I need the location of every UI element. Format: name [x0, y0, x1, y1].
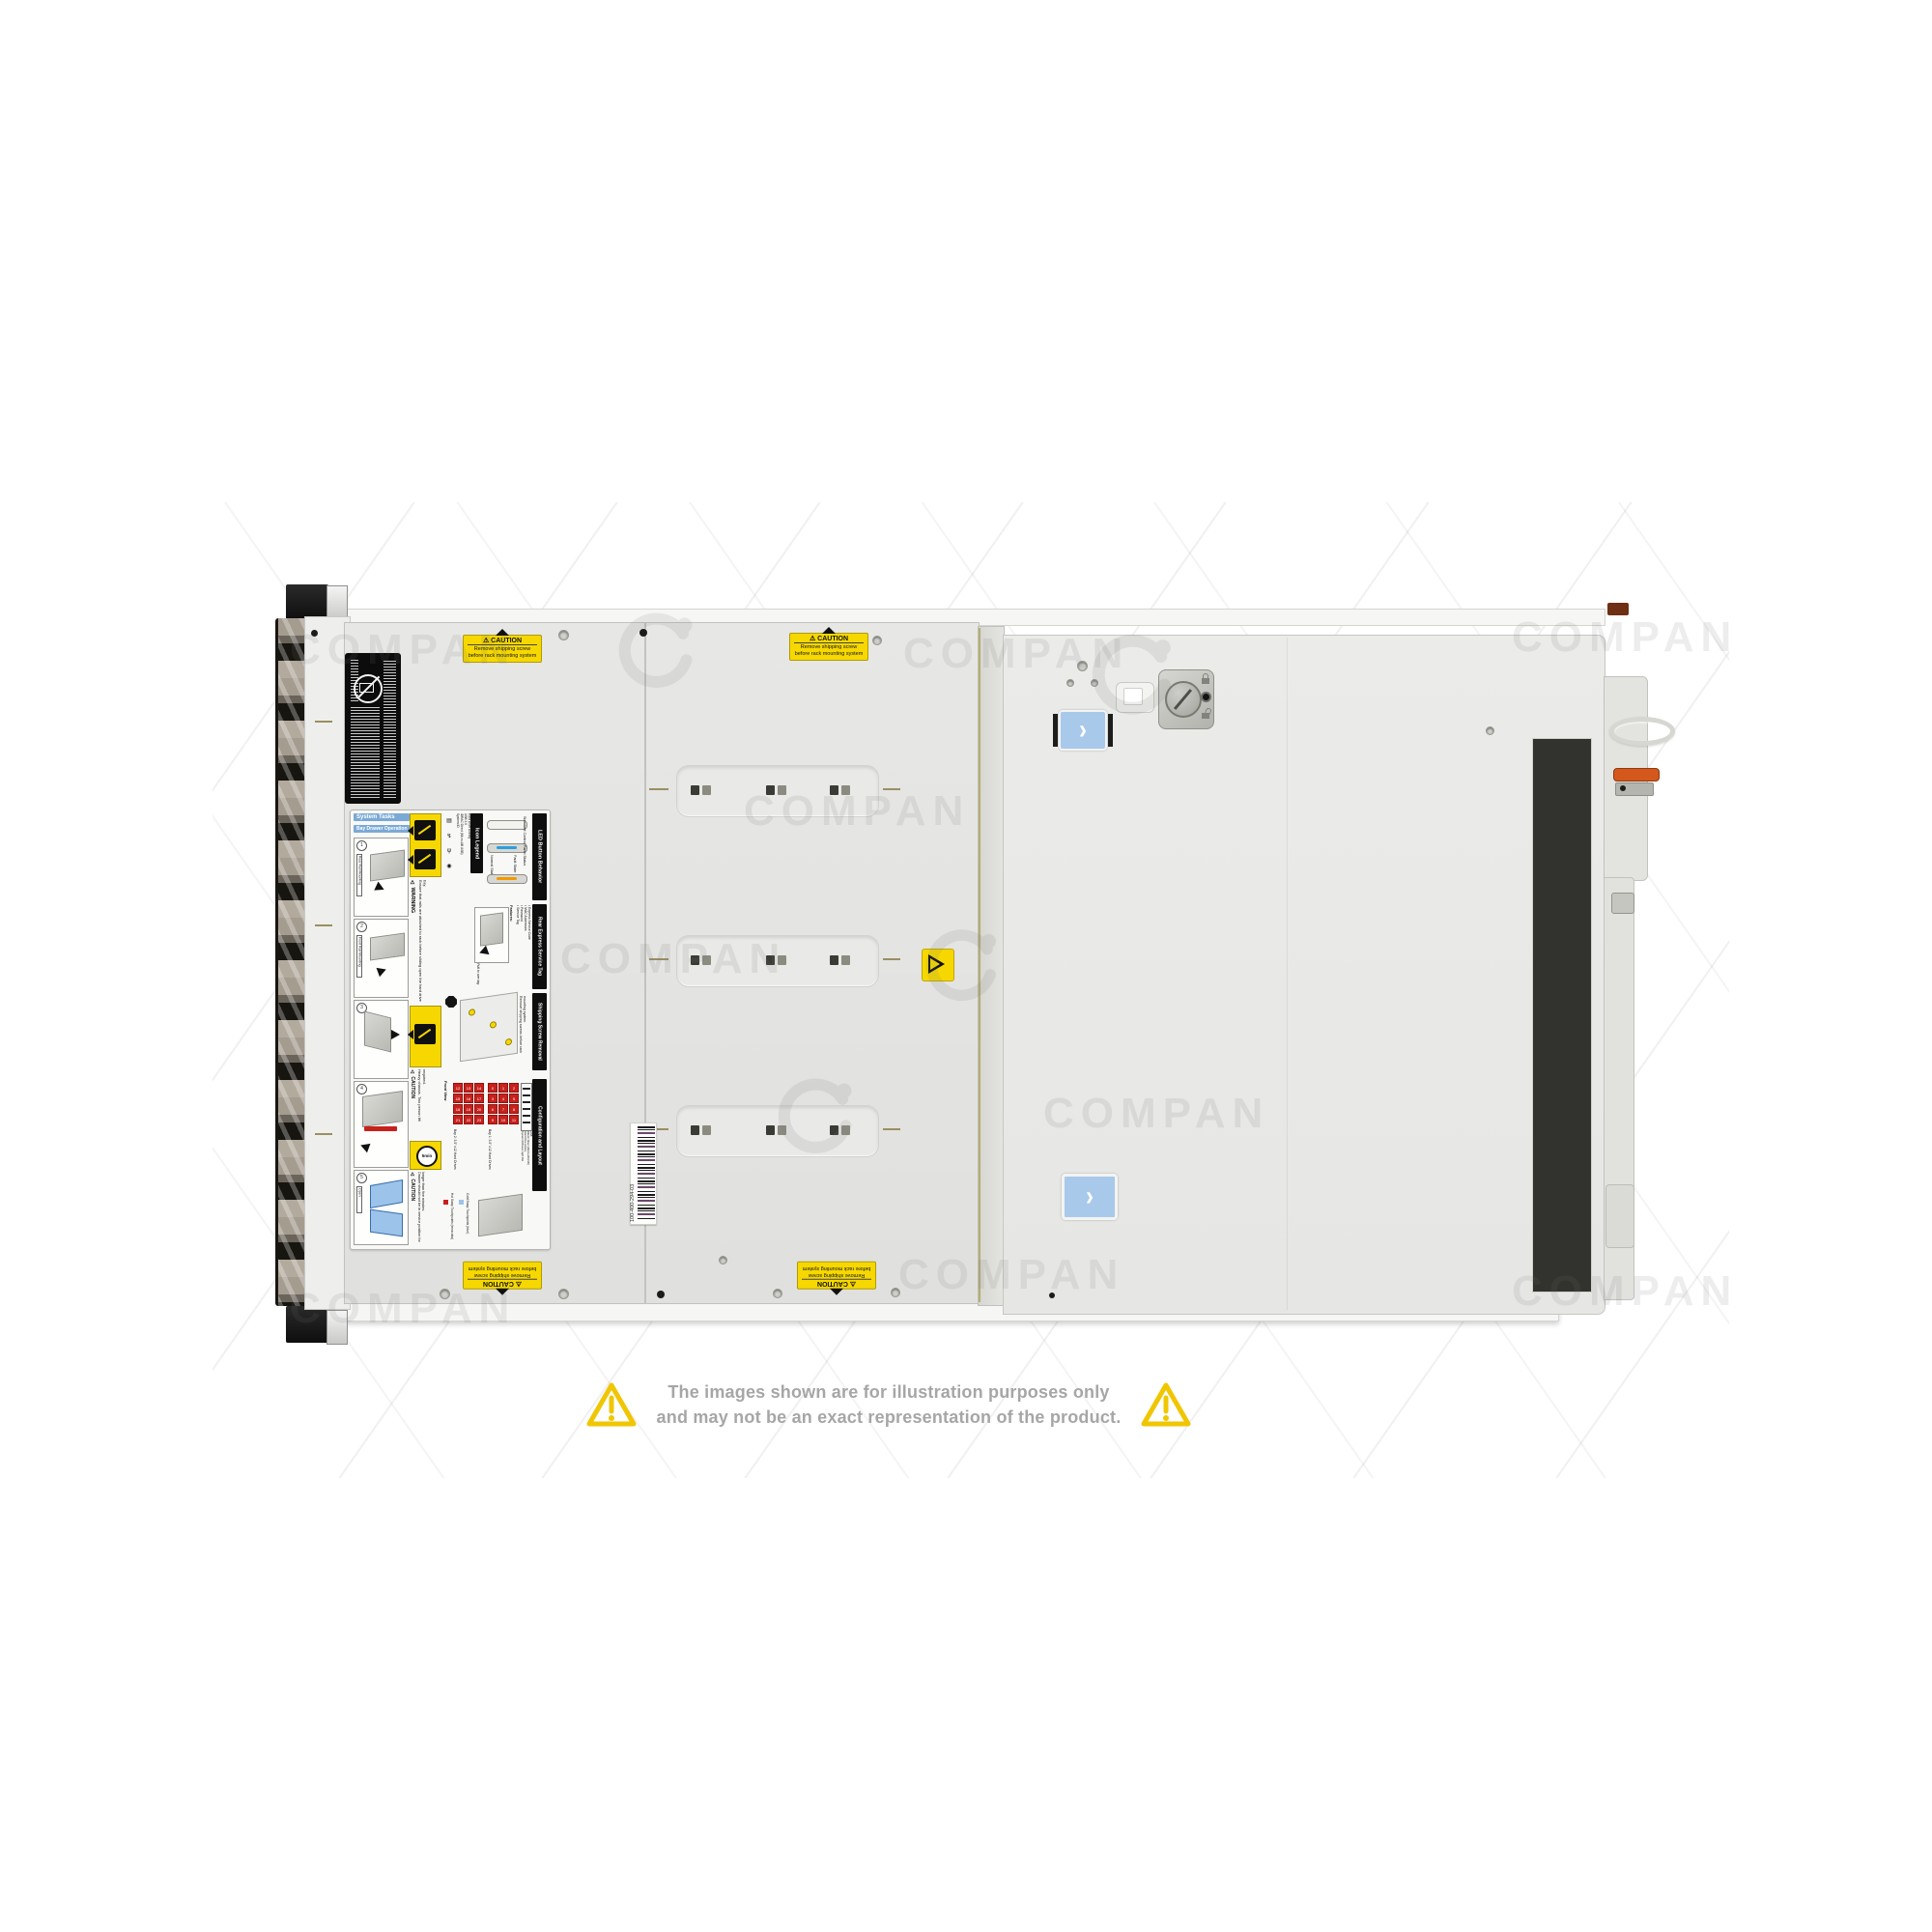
drive-bay-cell: 4	[498, 1094, 508, 1103]
caution-title: ⚠ CAUTION	[410, 1069, 415, 1137]
chevron-right-icon: ›	[1079, 717, 1087, 745]
caution-text: Heavy chassis. Two person lift required.	[417, 1069, 427, 1137]
caution-heavy-block: ⚠ CAUTION Heavy chassis. Two person lift…	[410, 1069, 440, 1137]
rail-tag: Open	[356, 1186, 362, 1213]
drive-bay-cell: 5	[509, 1094, 519, 1103]
hdd-activity-icon: ◉	[442, 863, 456, 869]
legend-hot-text: Hot Swap Touchpoints (terracotta)	[450, 1193, 454, 1243]
seam-mark	[315, 924, 332, 926]
watermark-text: COMPAN	[560, 935, 786, 983]
drive-bay-cell: 6	[488, 1104, 497, 1114]
vent-hole	[1486, 726, 1494, 735]
watermark-logo	[778, 1074, 861, 1157]
side-latch	[1611, 893, 1634, 914]
task-diagram: 2 Front Rail Mounting	[354, 919, 409, 998]
drive-bay-cell: 13	[464, 1083, 473, 1093]
drive-bay-cell: 20	[474, 1104, 484, 1114]
orange-release-latch	[1613, 768, 1660, 781]
step-number: 4	[356, 1084, 367, 1094]
watermark-text: COMPAN	[290, 626, 516, 674]
locked-padlock-icon	[1202, 678, 1209, 684]
caution-drawer-block: ⚠ CAUTION Drawer should not be in servic…	[410, 1172, 440, 1247]
screw-hole	[558, 1289, 569, 1299]
seam-mark	[883, 958, 900, 960]
step-number: 2	[356, 922, 367, 932]
drive-bay-cell: 1	[498, 1083, 508, 1093]
icon-legend-header: Icon Legend	[470, 813, 483, 873]
disclaimer-line2: and may not be an exact representation o…	[657, 1405, 1122, 1430]
bay1-label: Bay 1: 3.5" x12 Hard Drives	[488, 1129, 492, 1189]
barcode-label: 100-400-294-03	[630, 1122, 657, 1225]
cover-release-button-bottom: ›	[1062, 1174, 1118, 1220]
icon-legend-names: System IDiDRAC Direct (Micro-AB USB)USB …	[456, 813, 469, 873]
watermark-text: COMPAN	[290, 1285, 516, 1333]
warning-title: ⚠ WARNING	[410, 880, 415, 1002]
rail-tag: Rear Rail Mounting	[356, 854, 362, 896]
pinch-hazard-icon	[414, 849, 436, 869]
seam-mark	[649, 788, 668, 790]
led-bar-fault	[487, 874, 527, 884]
regulatory-fine-print	[351, 707, 380, 798]
pinch-hazard-icon	[414, 820, 436, 840]
side-tab	[1605, 1184, 1634, 1248]
label-header-system-tasks: System Tasks	[354, 813, 410, 821]
product-photo-canvas: › › ⚠ CAUTION Remove shipping screw befo…	[0, 0, 1932, 1932]
drive-bay-cell: 0	[488, 1083, 497, 1093]
control-panel-strip	[521, 1083, 532, 1131]
watermark-logo	[925, 925, 1005, 1005]
caution-line: before rack mounting system	[464, 1264, 541, 1271]
drive-bay-cell: 11	[509, 1115, 519, 1124]
legend-cold-row: Cold Swap Touchpoints (blue)	[459, 1193, 472, 1243]
led-subtitle: Standard Control Panel Status	[523, 816, 526, 897]
watermark-text: COMPAN	[1512, 1267, 1738, 1316]
drive-bay-cell: 21	[453, 1115, 463, 1124]
led-normal-label: Normal State	[490, 855, 494, 876]
caution-title: ⚠ CAUTION	[410, 1172, 415, 1247]
led-bar-normal	[487, 843, 527, 853]
stop-icon	[445, 996, 457, 1008]
vent-hole	[1066, 679, 1074, 687]
seam-mark	[883, 1128, 900, 1130]
shipping-diagram	[460, 992, 518, 1062]
unlocked-padlock-icon	[1202, 713, 1209, 719]
led-bar-off	[487, 820, 527, 830]
pinch-hazard-sticker	[410, 813, 441, 877]
caution-sticker-bottom-middle: ⚠ CAUTION Remove shipping screw before r…	[797, 1262, 876, 1290]
drive-bay-cell: 19	[464, 1104, 473, 1114]
caution-line: Remove shipping screw	[464, 1271, 541, 1278]
watermark-text: COMPAN	[898, 1251, 1124, 1299]
task-diagram: 3	[354, 1000, 409, 1079]
bay2-grid: 121314151617181920212223	[453, 1083, 484, 1124]
warning-text: Ensure that rails are attached to rack b…	[417, 880, 427, 1002]
pinch-hazard-icon	[414, 1024, 436, 1044]
five-minute-timer-sticker: 5min	[410, 1141, 441, 1170]
usb-icon: ψ	[442, 848, 456, 854]
bay2-label: Bay 2: 3.5" x12 Hard Drives	[453, 1129, 457, 1189]
disclaimer: The images shown are for illustration pu…	[580, 1379, 1198, 1430]
regulatory-fine-print	[384, 659, 396, 798]
task-diagram: 5 Open	[354, 1170, 409, 1245]
drive-bay-cell: 12	[453, 1083, 463, 1093]
drive-bay-cell: 18	[453, 1104, 463, 1114]
rack-ear-top-left-latch	[327, 585, 348, 620]
label-header-bay-drawer: Bay Drawer Operation	[354, 825, 410, 833]
drive-bay-cell: 14	[474, 1083, 484, 1093]
barcode-text: 100-400-294-03	[631, 1123, 637, 1224]
drive-bay-cell: 3	[488, 1094, 497, 1103]
front-bezel-vents	[275, 618, 307, 1306]
legend-hot-row: Hot Swap Touchpoints (terracotta)	[443, 1193, 457, 1243]
drive-bay-cell: 15	[453, 1094, 463, 1103]
latch-screw	[1620, 785, 1626, 791]
drive-bay-cell: 17	[474, 1094, 484, 1103]
rail-tag: Front Rail Mounting	[356, 935, 362, 978]
task-diagram: 4	[354, 1081, 409, 1168]
bay1-grid: 01234567891011	[488, 1083, 519, 1124]
cold-swap-color-chip	[459, 1200, 464, 1205]
step-number: 5	[356, 1173, 367, 1183]
watermark-text: COMPAN	[1043, 1090, 1269, 1138]
screw-hole	[558, 630, 569, 640]
caution-title: ⚠ CAUTION	[802, 1279, 871, 1288]
features-heading: Features:	[509, 905, 513, 990]
service-features: Features: Service TagPasswordMAC Address…	[509, 905, 530, 990]
shipping-header: Shipping Screw Removal	[532, 993, 547, 1070]
drive-bay-cell: 23	[474, 1115, 484, 1124]
features-list: Service TagPasswordMAC AddressesExpress …	[516, 905, 530, 990]
led-section-header: LED Button Behavior	[532, 813, 547, 900]
seam-mark	[315, 721, 332, 723]
caution-title: ⚠ CAUTION	[794, 635, 864, 643]
lock-indicator-dot	[1201, 692, 1211, 702]
regulatory-label	[345, 653, 401, 804]
step-number: 1	[356, 840, 367, 851]
screw	[657, 1291, 665, 1298]
task-diagram: 1 Rear Rail Mounting	[354, 838, 409, 917]
barcode-stripes	[638, 1126, 656, 1221]
exhaust-vent-grid	[1532, 738, 1592, 1293]
warning-block: ⚠ WARNING Ensure that rails are attached…	[410, 880, 440, 1002]
system-id-icon: ▤	[442, 817, 456, 824]
icon-legend-glyphs: ▤ ↯ ψ ◉	[442, 813, 456, 873]
config-chassis-diagram	[478, 1194, 523, 1236]
drive-bay-cell: 22	[464, 1115, 473, 1124]
watermark-text: COMPAN	[1512, 613, 1738, 662]
idrac-icon: ↯	[442, 833, 456, 839]
caution-text: Drawer should not be in service position…	[417, 1172, 425, 1247]
screw-hole	[773, 1289, 782, 1298]
watermark-logo	[618, 609, 701, 692]
service-note: Pull to see tag	[476, 963, 480, 992]
caution-line: before rack mounting system	[798, 1264, 875, 1271]
drive-bay-cell: 9	[488, 1115, 497, 1124]
config-header: Configuration and Layout	[532, 1079, 547, 1191]
pinch-hazard-sticker	[410, 1006, 441, 1067]
screw-hole	[719, 1256, 727, 1264]
screw-hole	[872, 636, 882, 645]
caution-sticker-top-middle: ⚠ CAUTION Remove shipping screw before r…	[789, 633, 868, 661]
seam-mark	[315, 1133, 332, 1135]
watermark-text: COMPAN	[744, 787, 970, 836]
disclaimer-line1: The images shown are for illustration pu…	[657, 1379, 1122, 1405]
led-fault-label: Fault State	[513, 855, 517, 872]
shipping-text: Remove shipping screws before rack mount…	[519, 996, 526, 1060]
psu-ring-handle	[1609, 717, 1675, 746]
cover-seam	[1287, 638, 1288, 1310]
warning-triangle-icon	[585, 1380, 638, 1429]
drive-bay-cell: 16	[464, 1094, 473, 1103]
caution-line: Remove shipping screw	[798, 1271, 875, 1278]
disclaimer-text: The images shown are for illustration pu…	[657, 1379, 1122, 1430]
drive-bay-cell: 10	[498, 1115, 508, 1124]
drive-bay-cell: 2	[509, 1083, 519, 1093]
service-instruction-label: System Tasks Bay Drawer Operation 1 Rear…	[350, 810, 551, 1250]
service-tag-header: Rear Express Service Tag	[532, 904, 547, 989]
clock-icon: 5min	[416, 1146, 438, 1167]
feature-item: Express Service Code	[527, 905, 531, 990]
chevron-right-icon: ›	[1086, 1183, 1094, 1211]
legend-cold-text: Cold Swap Touchpoints (blue)	[466, 1193, 469, 1243]
config-front-view: Front View	[443, 1081, 448, 1120]
drive-bay-cell: 8	[509, 1104, 519, 1114]
service-tag-diagram	[474, 907, 509, 963]
caution-line: before rack mounting system	[790, 651, 867, 658]
watermark-logo	[1092, 630, 1180, 719]
button-bracket	[1108, 714, 1113, 747]
caution-line: Remove shipping screw	[790, 644, 867, 651]
button-bracket	[1053, 714, 1058, 747]
hot-swap-color-chip	[443, 1200, 448, 1205]
drive-bay-cell: 7	[498, 1104, 508, 1114]
warning-triangle-icon	[1140, 1380, 1192, 1429]
